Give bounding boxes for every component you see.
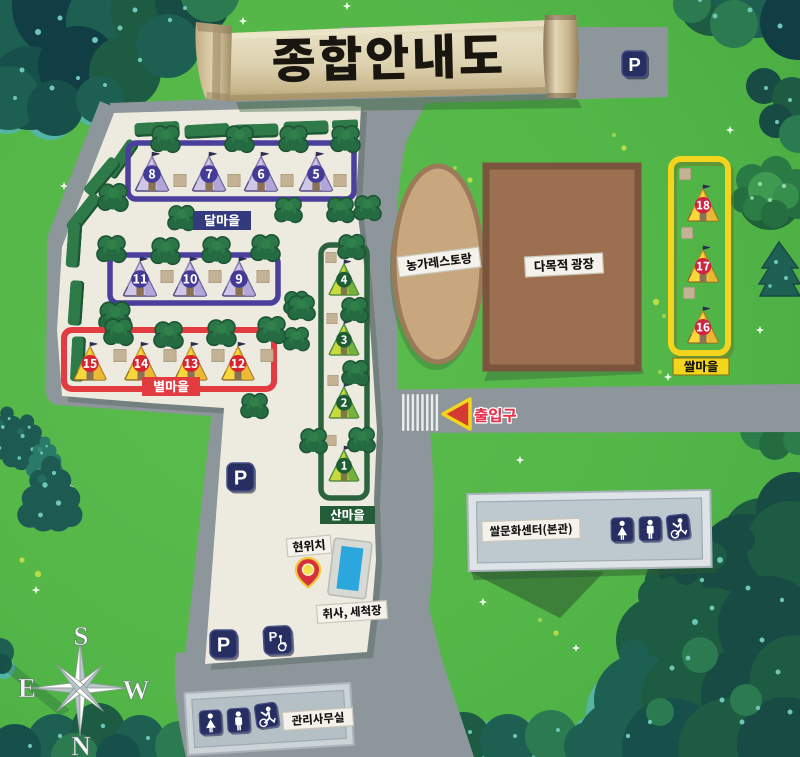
svg-text:E: E	[18, 673, 36, 703]
svg-text:P: P	[628, 54, 640, 75]
svg-text:S: S	[73, 621, 88, 651]
svg-text:N: N	[71, 731, 91, 757]
svg-text:P: P	[217, 635, 230, 657]
svg-text:P: P	[268, 629, 278, 644]
svg-text:W: W	[123, 675, 150, 705]
svg-text:P: P	[234, 468, 247, 490]
